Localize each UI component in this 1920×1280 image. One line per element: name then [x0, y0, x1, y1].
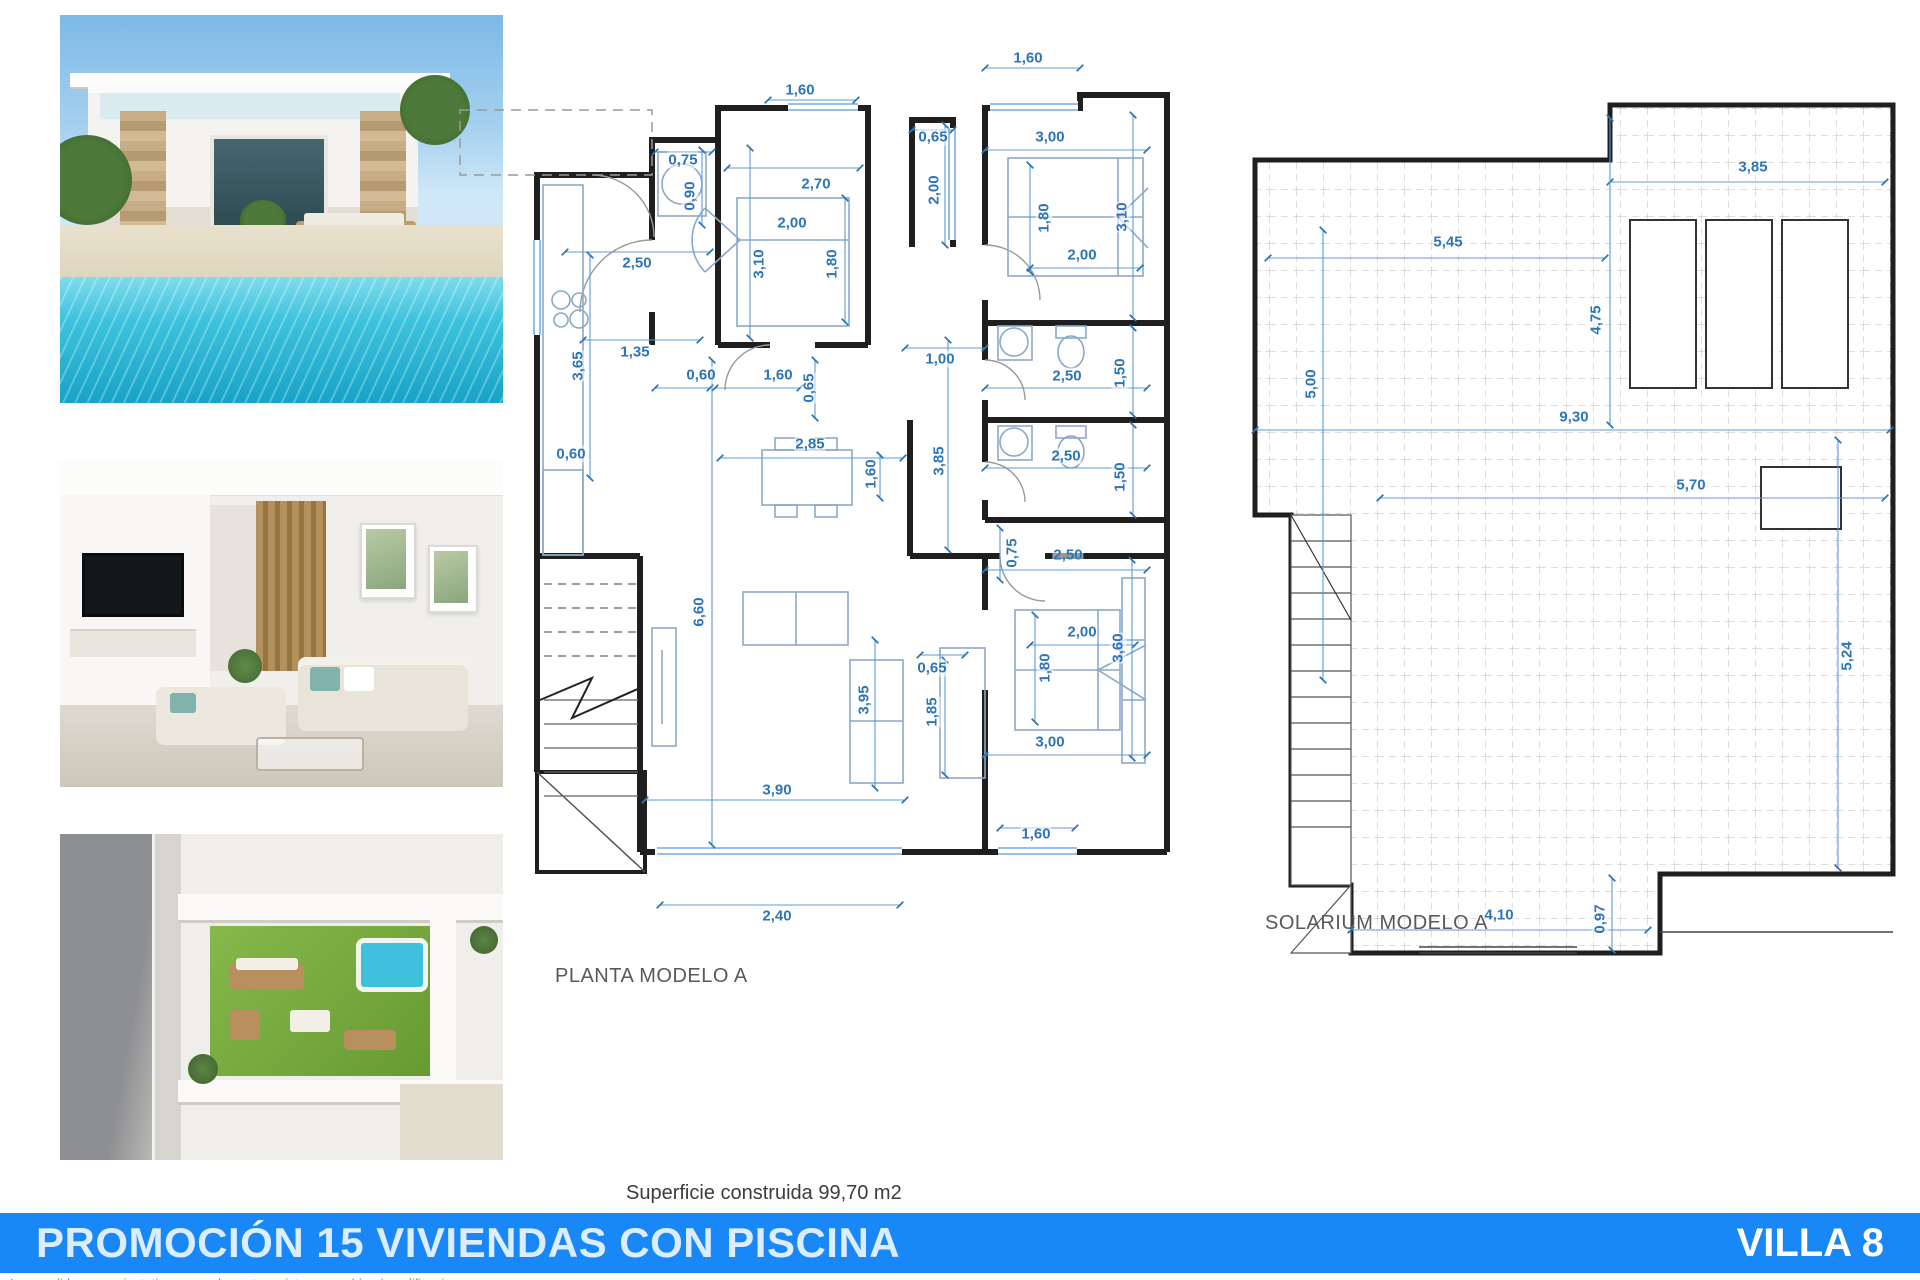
windows: [531, 101, 1078, 858]
caption-planta: PLANTA MODELO A: [555, 965, 748, 988]
promo-title: PROMOCIÓN 15 VIVIENDAS CON PISCINA: [36, 1219, 900, 1267]
villa-number: VILLA 8: [1737, 1221, 1884, 1266]
surface-note: Superficie construida 99,70 m2: [626, 1182, 902, 1205]
disclaimer-text: Las medidas son orientativas y pueden es…: [10, 1276, 472, 1280]
caption-solarium: SOLARIUM MODELO A: [1265, 912, 1488, 935]
floor-plans-drawing: [0, 0, 1920, 1280]
planta-stairs: [540, 584, 640, 796]
footer-bar: PROMOCIÓN 15 VIVIENDAS CON PISCINA VILLA…: [0, 1213, 1920, 1273]
brochure-sheet: 1,600,750,902,702,003,101,800,652,001,60…: [0, 0, 1920, 1280]
